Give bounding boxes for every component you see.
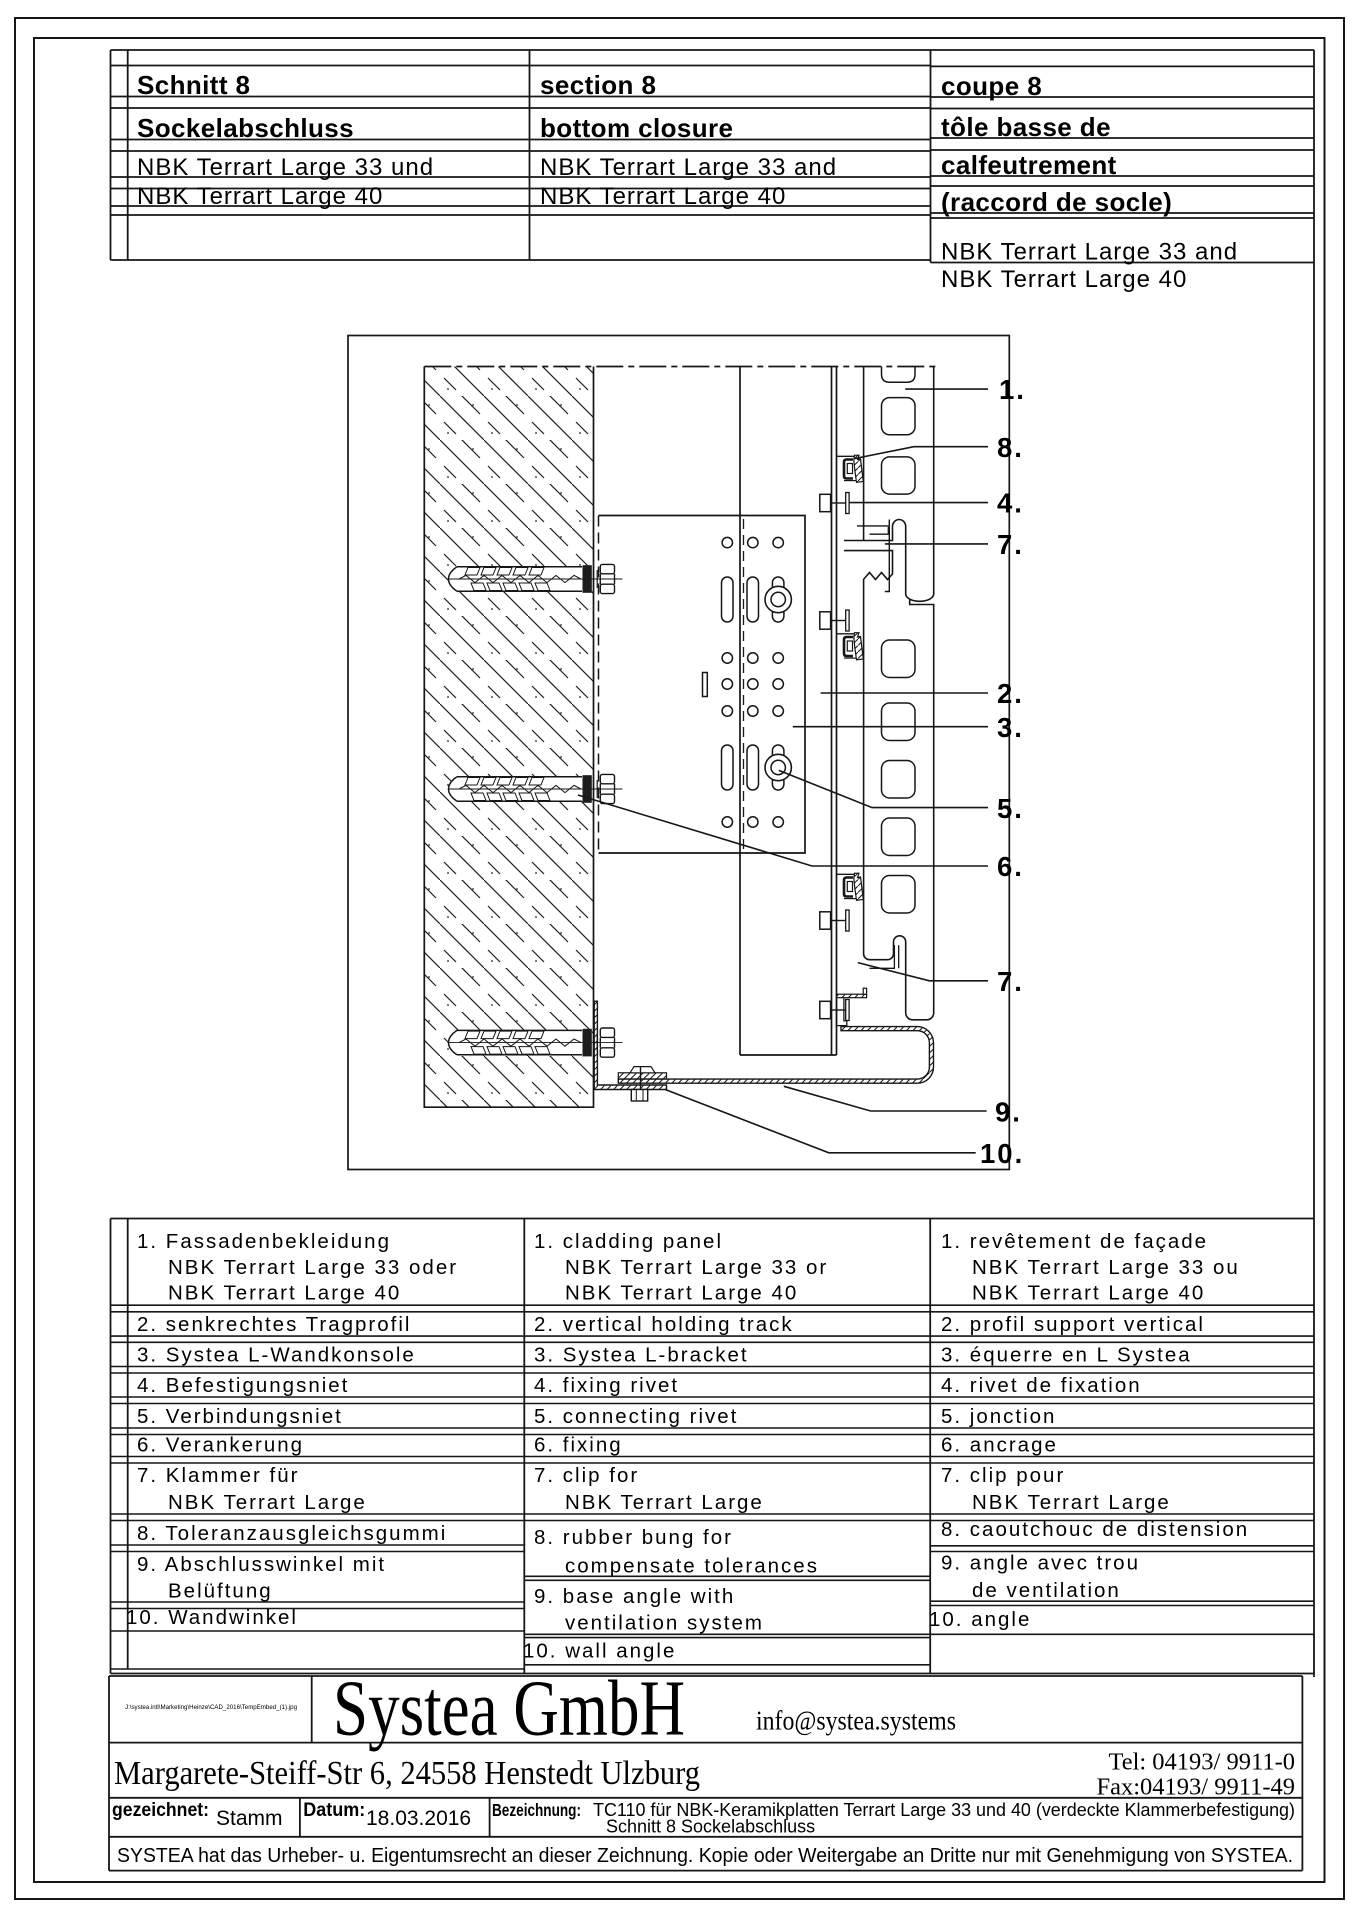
svg-text:tôle basse de: tôle basse de <box>941 112 1111 142</box>
svg-text:4. fixing rivet: 4. fixing rivet <box>534 1374 679 1397</box>
svg-text:8. caoutchouc de distension: 8. caoutchouc de distension <box>941 1518 1249 1541</box>
svg-text:NBK Terrart Large 33 and: NBK Terrart Large 33 and <box>540 154 837 181</box>
svg-text:Belüftung: Belüftung <box>168 1580 273 1603</box>
svg-text:section 8: section 8 <box>540 70 656 100</box>
svg-text:8. rubber bung for: 8. rubber bung for <box>534 1526 733 1549</box>
svg-text:J:\systea.intl\Marketing\Heinz: J:\systea.intl\Marketing\Heinze\CAD_2016… <box>125 1704 298 1711</box>
svg-text:NBK Terrart Large 40: NBK Terrart Large 40 <box>137 183 383 210</box>
svg-text:3. Systea L-Wandkonsole: 3. Systea L-Wandkonsole <box>137 1344 416 1367</box>
svg-text:SYSTEA hat das Urheber- u. Eig: SYSTEA hat das Urheber- u. Eigentumsrech… <box>117 1844 1293 1867</box>
svg-text:7. clip for: 7. clip for <box>534 1464 639 1487</box>
svg-text:18.03.2016: 18.03.2016 <box>366 1807 471 1830</box>
svg-text:8.: 8. <box>997 432 1024 463</box>
svg-text:3. équerre en L Systea: 3. équerre en L Systea <box>941 1344 1192 1367</box>
svg-text:9. angle avec trou: 9. angle avec trou <box>941 1552 1140 1575</box>
svg-text:Stamm: Stamm <box>216 1807 283 1830</box>
svg-text:NBK Terrart Large 40: NBK Terrart Large 40 <box>941 266 1187 293</box>
svg-text:coupe 8: coupe 8 <box>941 71 1042 101</box>
svg-text:(raccord de socle): (raccord de socle) <box>941 187 1172 217</box>
svg-text:NBK Terrart Large 40: NBK Terrart Large 40 <box>168 1282 401 1305</box>
svg-text:NBK Terrart Large 40: NBK Terrart Large 40 <box>972 1282 1205 1305</box>
svg-text:7. Klammer für: 7. Klammer für <box>137 1464 299 1487</box>
svg-text:Fax:04193/ 9911-49: Fax:04193/ 9911-49 <box>1097 1773 1296 1800</box>
svg-text:9. base angle with: 9. base angle with <box>534 1585 735 1608</box>
svg-text:6.: 6. <box>997 851 1024 882</box>
svg-text:NBK Terrart Large 33 oder: NBK Terrart Large 33 oder <box>168 1256 458 1279</box>
svg-text:compensate tolerances: compensate tolerances <box>565 1554 819 1577</box>
svg-text:Margarete-Steiff-Str 6, 24558: Margarete-Steiff-Str 6, 24558 Henstedt U… <box>114 1755 700 1792</box>
svg-text:1. cladding panel: 1. cladding panel <box>534 1230 723 1253</box>
svg-text:Datum:: Datum: <box>303 1800 365 1821</box>
svg-text:5. jonction: 5. jonction <box>941 1405 1056 1428</box>
svg-text:2.: 2. <box>997 678 1024 709</box>
svg-text:bottom closure: bottom closure <box>540 113 733 143</box>
svg-text:Schnitt 8 Sockelabschluss: Schnitt 8 Sockelabschluss <box>606 1816 815 1836</box>
svg-text:5. connecting rivet: 5. connecting rivet <box>534 1405 738 1428</box>
svg-text:2. profil support vertical: 2. profil support vertical <box>941 1313 1205 1336</box>
svg-text:10.: 10. <box>980 1138 1024 1169</box>
svg-text:info@systea.systems: info@systea.systems <box>756 1705 956 1735</box>
svg-text:NBK Terrart Large: NBK Terrart Large <box>972 1491 1171 1514</box>
svg-text:2. senkrechtes Tragprofil: 2. senkrechtes Tragprofil <box>137 1313 411 1336</box>
svg-text:gezeichnet:: gezeichnet: <box>112 1800 209 1821</box>
svg-text:2. vertical holding track: 2. vertical holding track <box>534 1313 794 1336</box>
svg-text:7.: 7. <box>997 529 1024 560</box>
svg-text:10. angle: 10. angle <box>929 1608 1031 1631</box>
svg-text:7.: 7. <box>997 966 1024 997</box>
svg-text:Tel: 04193/ 9911-0: Tel: 04193/ 9911-0 <box>1108 1748 1295 1775</box>
svg-text:NBK Terrart Large 40: NBK Terrart Large 40 <box>565 1282 798 1305</box>
svg-text:calfeutrement: calfeutrement <box>941 150 1117 180</box>
svg-text:1.: 1. <box>999 374 1026 405</box>
svg-text:10. Wandwinkel: 10. Wandwinkel <box>126 1606 298 1629</box>
svg-text:NBK Terrart Large 40: NBK Terrart Large 40 <box>540 183 786 210</box>
svg-text:4. Befestigungsniet: 4. Befestigungsniet <box>137 1374 349 1397</box>
svg-text:3. Systea L-bracket: 3. Systea L-bracket <box>534 1344 749 1367</box>
svg-text:8. Toleranzausgleichsgummi: 8. Toleranzausgleichsgummi <box>137 1522 447 1545</box>
svg-text:NBK Terrart Large 33 und: NBK Terrart Large 33 und <box>137 154 434 181</box>
svg-text:1. revêtement de façade: 1. revêtement de façade <box>941 1230 1208 1253</box>
svg-text:9.: 9. <box>995 1097 1022 1128</box>
svg-text:6. Verankerung: 6. Verankerung <box>137 1434 304 1457</box>
svg-text:NBK Terrart Large: NBK Terrart Large <box>565 1491 764 1514</box>
svg-text:4.: 4. <box>997 488 1024 519</box>
svg-text:NBK Terrart Large 33 or: NBK Terrart Large 33 or <box>565 1256 828 1279</box>
svg-text:3.: 3. <box>997 712 1024 743</box>
svg-text:5. Verbindungsniet: 5. Verbindungsniet <box>137 1405 343 1428</box>
svg-text:Systea GmbH: Systea GmbH <box>333 1665 685 1752</box>
svg-text:9. Abschlusswinkel mit: 9. Abschlusswinkel mit <box>137 1553 386 1576</box>
svg-text:NBK Terrart Large 33 and: NBK Terrart Large 33 and <box>941 239 1238 266</box>
svg-text:NBK Terrart Large: NBK Terrart Large <box>168 1491 367 1514</box>
svg-text:NBK Terrart Large 33 ou: NBK Terrart Large 33 ou <box>972 1256 1240 1279</box>
svg-text:1. Fassadenbekleidung: 1. Fassadenbekleidung <box>137 1230 391 1253</box>
svg-text:ventilation system: ventilation system <box>565 1611 764 1634</box>
svg-text:Bezeichnung:: Bezeichnung: <box>492 1800 581 1820</box>
svg-text:5.: 5. <box>997 793 1024 824</box>
svg-text:Schnitt 8: Schnitt 8 <box>137 70 250 100</box>
svg-text:de ventilation: de ventilation <box>972 1579 1121 1602</box>
svg-text:6. fixing: 6. fixing <box>534 1434 623 1457</box>
svg-text:7. clip pour: 7. clip pour <box>941 1464 1065 1487</box>
svg-text:4. rivet de fixation: 4. rivet de fixation <box>941 1374 1142 1397</box>
svg-text:10. wall angle: 10. wall angle <box>523 1640 676 1663</box>
svg-text:6. ancrage: 6. ancrage <box>941 1434 1058 1457</box>
svg-text:Sockelabschluss: Sockelabschluss <box>137 113 354 143</box>
